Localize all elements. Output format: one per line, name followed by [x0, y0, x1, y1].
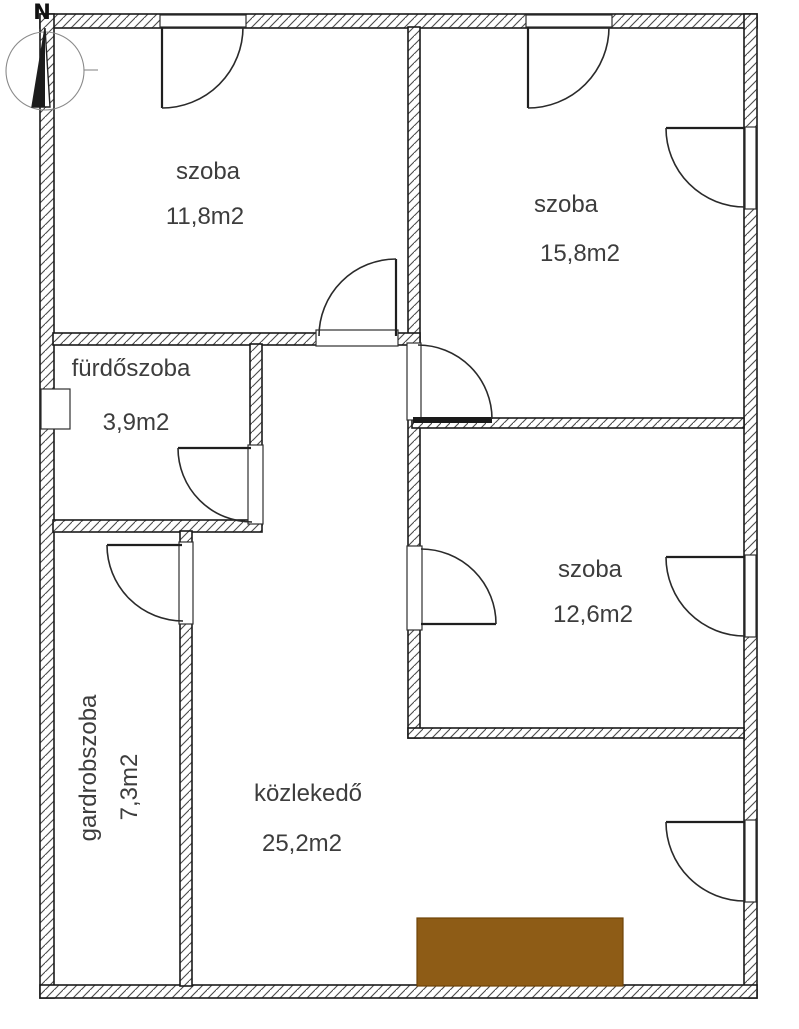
door-swing-arc — [666, 557, 745, 636]
door-leaf — [413, 417, 492, 423]
door-szoba3-right — [666, 557, 745, 636]
door-szoba1-hall — [319, 259, 396, 336]
door-frame-szoba3-right — [745, 555, 756, 637]
door-swing-arc — [666, 128, 745, 207]
room-label-bathroom: fürdőszoba 3,9m2 — [72, 355, 191, 436]
door-frame-szoba2-right — [745, 127, 756, 209]
door-swing-arc — [162, 27, 243, 108]
room-name: szoba — [534, 191, 599, 218]
floor-plan-svg: N szoba 11,8m2 szoba 15,8m2 fürdőszoba 3… — [0, 0, 799, 1024]
door-frame-szoba3-hall — [407, 546, 422, 630]
apartment-walls — [40, 14, 757, 998]
door-frame-bathroom — [248, 445, 263, 524]
room-name: közlekedő — [254, 780, 362, 807]
door-swing-arc — [421, 549, 496, 624]
door-frame-wardrobe — [179, 542, 193, 624]
room-label-hallway: közlekedő 25,2m2 — [254, 780, 362, 857]
room-area: 15,8m2 — [540, 240, 620, 267]
room-area: 25,2m2 — [262, 830, 342, 857]
door-hall-right — [666, 822, 745, 901]
left-wall-niche — [41, 389, 70, 429]
wall-bathroom-bottom — [53, 520, 262, 532]
room-area: 12,6m2 — [553, 601, 633, 628]
room-name: fürdőszoba — [72, 355, 191, 382]
north-label: N — [33, 0, 51, 24]
entrance-mat — [417, 918, 623, 986]
door-swing-arc — [107, 545, 183, 621]
room-name: gardrobszoba — [75, 694, 102, 841]
room-label-szoba-1: szoba 11,8m2 — [166, 158, 244, 230]
room-labels: szoba 11,8m2 szoba 15,8m2 fürdőszoba 3,9… — [72, 158, 633, 857]
room-area: 3,9m2 — [103, 409, 170, 436]
door-frames — [160, 15, 756, 902]
door-frame-hall-right — [745, 820, 756, 902]
door-szoba2-right — [666, 128, 745, 207]
door-frame-szoba1-top — [160, 15, 246, 27]
door-szoba3-hall — [421, 549, 496, 624]
room-label-szoba-2: szoba 15,8m2 — [534, 191, 620, 267]
wall-szoba3-bottom — [408, 728, 744, 738]
room-area: 7,3m2 — [116, 754, 143, 821]
door-szoba1-top — [162, 27, 243, 108]
room-area: 11,8m2 — [166, 203, 244, 230]
room-label-wardrobe: gardrobszoba 7,3m2 — [75, 694, 143, 841]
door-szoba2-top — [528, 27, 609, 108]
door-wardrobe — [107, 545, 183, 621]
room-name: szoba — [176, 158, 241, 185]
room-label-szoba-3: szoba 12,6m2 — [553, 556, 633, 628]
wall-outer-top — [40, 14, 757, 28]
door-swing-arc — [178, 448, 252, 522]
door-swing-arc — [319, 259, 396, 336]
door-frame-szoba2-hall — [407, 343, 421, 420]
room-name: szoba — [558, 556, 623, 583]
door-swing-arc — [528, 27, 609, 108]
door-swing-arc — [666, 822, 745, 901]
door-frame-szoba2-top — [526, 15, 612, 27]
door-frame-szoba1-hall — [316, 330, 398, 346]
door-szoba2-hall — [413, 345, 492, 423]
wall-outer-bottom — [40, 985, 757, 998]
floor-plan-page: N szoba 11,8m2 szoba 15,8m2 fürdőszoba 3… — [0, 0, 799, 1024]
wall-outer-left — [40, 14, 54, 998]
door-swing-arc — [418, 345, 492, 419]
door-bathroom — [178, 448, 252, 522]
